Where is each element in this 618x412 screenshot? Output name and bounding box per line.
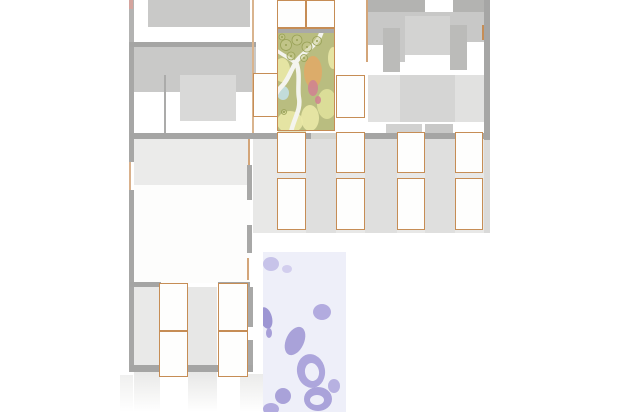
water-blob-0 xyxy=(263,257,279,271)
mid-strip-2 xyxy=(365,139,397,233)
lm-orange-seg xyxy=(248,139,250,165)
rb-top-notch xyxy=(425,0,453,12)
cell-ll-a1 xyxy=(159,283,188,331)
courtyard-garden xyxy=(277,28,335,131)
lm-band xyxy=(134,139,250,185)
left-door-line xyxy=(129,162,131,190)
water-blob-4 xyxy=(313,304,331,320)
fade-strip-b xyxy=(188,372,217,412)
rb-bottom-block-b xyxy=(425,124,453,133)
cell-ll-b1 xyxy=(218,283,248,331)
garden-patch-7 xyxy=(315,96,321,104)
cell-top-court-a xyxy=(277,0,306,28)
rb-dark-a xyxy=(383,28,400,72)
lm-rwall-a xyxy=(247,165,252,200)
cell-ll-a2 xyxy=(159,331,188,377)
water-feature xyxy=(263,252,346,412)
lm-orange-seg2 xyxy=(247,258,249,280)
wall-h2-gap xyxy=(311,133,336,139)
rb-right-wall xyxy=(484,0,490,140)
water-blob-1 xyxy=(282,265,292,273)
ll-rwall-b xyxy=(248,340,253,368)
rb-dark-b xyxy=(450,25,467,70)
fade-strip-left-outer xyxy=(120,375,133,412)
water-hole-1 xyxy=(310,395,324,405)
cell-mid-a2 xyxy=(277,178,306,230)
fade-strip-a xyxy=(134,372,160,412)
water-blob-9 xyxy=(328,379,340,393)
cell-mid-c2 xyxy=(397,178,425,230)
mid-strip-3 xyxy=(425,139,455,233)
garden-patch-4 xyxy=(301,105,319,131)
ll-strip-left xyxy=(134,287,159,366)
lm-rwall-b xyxy=(247,225,252,253)
rb-orange-tick xyxy=(482,25,484,40)
lb-vwall xyxy=(164,75,166,133)
ll-rwall-a xyxy=(248,287,253,327)
cell-mid-d2 xyxy=(455,178,483,230)
fade-strip-c xyxy=(240,374,264,412)
water-blob-3 xyxy=(266,328,272,338)
cell-mid-b1 xyxy=(336,132,365,173)
ll-strip-mid xyxy=(188,287,217,366)
cell-mid-d1 xyxy=(455,132,483,173)
cell-mid-c1 xyxy=(397,132,425,173)
garden-patch-6 xyxy=(308,80,318,96)
cell-corridor-right xyxy=(336,75,365,118)
rb-white-mid xyxy=(405,55,450,75)
rb-inner-light xyxy=(405,16,450,56)
mid-strip-1 xyxy=(306,139,336,233)
rb-white-right xyxy=(467,42,484,75)
cell-mid-b2 xyxy=(336,178,365,230)
left-wall-pink-tick xyxy=(129,0,133,9)
lb-top-block xyxy=(148,0,250,27)
rb-right-wall-light xyxy=(484,140,490,233)
water-blob-7 xyxy=(275,388,291,404)
architectural-floor-plan xyxy=(0,0,618,412)
cell-top-court-b xyxy=(306,0,335,28)
lb-inner-square xyxy=(180,75,236,121)
rb-band-block xyxy=(400,75,455,122)
cell-ll-b2 xyxy=(218,331,248,377)
cell-mid-a1 xyxy=(277,132,306,173)
cell-corridor-left xyxy=(253,73,278,117)
lm-room xyxy=(134,185,250,283)
rb-white-left xyxy=(368,45,383,75)
